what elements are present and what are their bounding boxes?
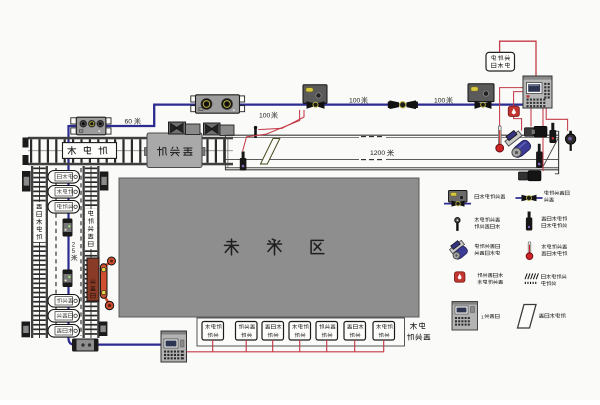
svg-text:100: 100 [434, 98, 446, 105]
svg-text:1: 1 [481, 314, 484, 320]
svg-text:1200: 1200 [370, 150, 385, 157]
svg-text:60: 60 [125, 119, 133, 126]
svg-text:100: 100 [349, 98, 361, 105]
svg-text:100: 100 [259, 113, 271, 120]
